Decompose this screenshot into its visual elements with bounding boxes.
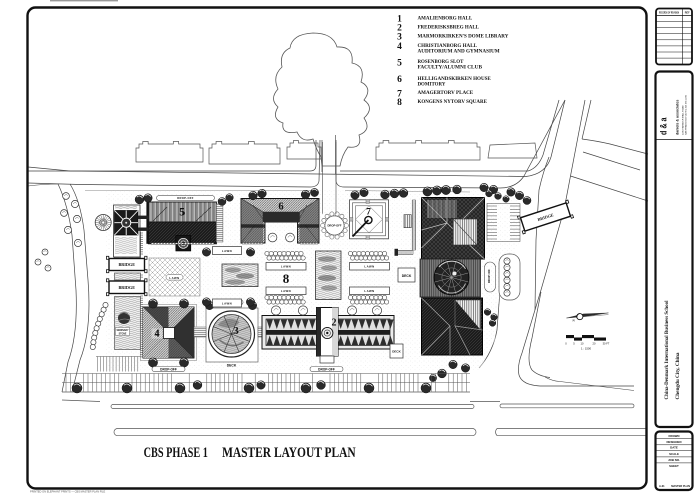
svg-text:KONGENS NYTORV SQUARE: KONGENS NYTORV SQUARE: [418, 100, 487, 105]
svg-text:BRIDGE: BRIDGE: [118, 262, 135, 267]
svg-text:DROP-OFF: DROP-OFF: [177, 196, 193, 200]
svg-text:AUDITORIUM AND GYMNASIUM: AUDITORIUM AND GYMNASIUM: [418, 49, 501, 54]
svg-text:LAWN: LAWN: [364, 265, 374, 269]
svg-text:4: 4: [397, 42, 402, 52]
svg-text:CHRISTIANBORG HALL: CHRISTIANBORG HALL: [418, 44, 478, 49]
svg-text:1 : 1500: 1 : 1500: [581, 347, 592, 351]
svg-text:SCALE: SCALE: [669, 452, 679, 456]
svg-text:DATE: DATE: [670, 446, 678, 450]
svg-text:DROP-OFF: DROP-OFF: [318, 368, 335, 372]
svg-text:LAWN: LAWN: [222, 249, 232, 253]
svg-text:30 FT: 30 FT: [603, 342, 610, 346]
svg-text:DECK: DECK: [227, 364, 237, 368]
svg-text:7: 7: [366, 208, 371, 218]
svg-text:DESIGNED: DESIGNED: [666, 440, 681, 444]
svg-text:AMAGERTORV PLACE: AMAGERTORV PLACE: [418, 91, 474, 96]
svg-text:REF: REF: [685, 12, 690, 15]
svg-text:5: 5: [397, 58, 402, 68]
svg-text:DROP-OFF: DROP-OFF: [327, 224, 341, 228]
svg-text:DRAWN: DRAWN: [669, 434, 680, 438]
svg-text:AMALIENBORG HALL: AMALIENBORG HALL: [418, 16, 473, 21]
svg-text:PRINTED ON ELEPHANT PRINTS — C: PRINTED ON ELEPHANT PRINTS — CBS MASTER …: [30, 490, 105, 494]
svg-text:DROP OFF: DROP OFF: [487, 269, 491, 283]
svg-text:RECORDS OF REVISION: RECORDS OF REVISION: [659, 12, 679, 15]
svg-text:SEMINARY: SEMINARY: [116, 329, 129, 332]
svg-text:DOMITORY: DOMITORY: [418, 82, 447, 87]
svg-text:MASTER PLAN: MASTER PLAN: [671, 484, 690, 488]
svg-text:8: 8: [283, 271, 290, 286]
svg-text:LAWN: LAWN: [364, 289, 374, 293]
svg-text:ROSENBORG SLOT: ROSENBORG SLOT: [418, 60, 465, 65]
svg-text:MARMORKIRKEN'S DOME LIBRARY: MARMORKIRKEN'S DOME LIBRARY: [418, 35, 510, 40]
svg-text:6: 6: [397, 75, 402, 85]
svg-text:3: 3: [233, 325, 239, 337]
svg-text:BRIDGE: BRIDGE: [118, 285, 135, 290]
svg-text:China-Denmark International Bu: China-Denmark International Business Sch…: [664, 300, 670, 399]
svg-text:Chengdu City, China: Chengdu City, China: [675, 352, 681, 399]
svg-text:STONE: STONE: [119, 333, 127, 335]
svg-text:d & a: d & a: [659, 117, 669, 135]
svg-text:2235 HARBOUR MALL ROAD: 2235 HARBOUR MALL ROAD: [682, 105, 685, 135]
svg-text:CBS PHASE 1: CBS PHASE 1: [144, 445, 208, 461]
svg-text:2: 2: [332, 318, 337, 329]
svg-text:DECK: DECK: [402, 274, 412, 278]
svg-text:6: 6: [278, 202, 283, 213]
svg-text:daniels & associates: daniels & associates: [676, 100, 680, 135]
svg-text:JOB NO.: JOB NO.: [668, 458, 680, 462]
svg-text:HELLIGANDSKIRKEN HOUSE: HELLIGANDSKIRKEN HOUSE: [418, 77, 491, 82]
svg-text:A-01: A-01: [659, 484, 665, 488]
svg-text:LAWN: LAWN: [169, 276, 179, 280]
svg-text:5: 5: [179, 205, 185, 219]
svg-text:DECK: DECK: [392, 350, 401, 354]
svg-text:SAN FRANCISCO CA TEL 415 55: SAN FRANCISCO CA TEL 415 555 2235: [684, 94, 687, 135]
svg-text:SHEET: SHEET: [669, 464, 679, 468]
svg-text:3: 3: [397, 33, 402, 43]
svg-text:8: 8: [397, 98, 402, 108]
svg-text:LAWN: LAWN: [281, 289, 291, 293]
svg-text:4: 4: [155, 329, 160, 340]
svg-text:MASTER LAYOUT PLAN: MASTER LAYOUT PLAN: [222, 445, 356, 461]
svg-text:DROP-OFF: DROP-OFF: [160, 368, 177, 372]
svg-text:FACULTY/ALUMNI CLUB: FACULTY/ALUMNI CLUB: [418, 66, 483, 71]
svg-text:LAWN: LAWN: [222, 301, 232, 305]
svg-text:FREDERISKSBREG HALL: FREDERISKSBREG HALL: [418, 25, 480, 30]
svg-text:LAWN: LAWN: [281, 265, 291, 269]
